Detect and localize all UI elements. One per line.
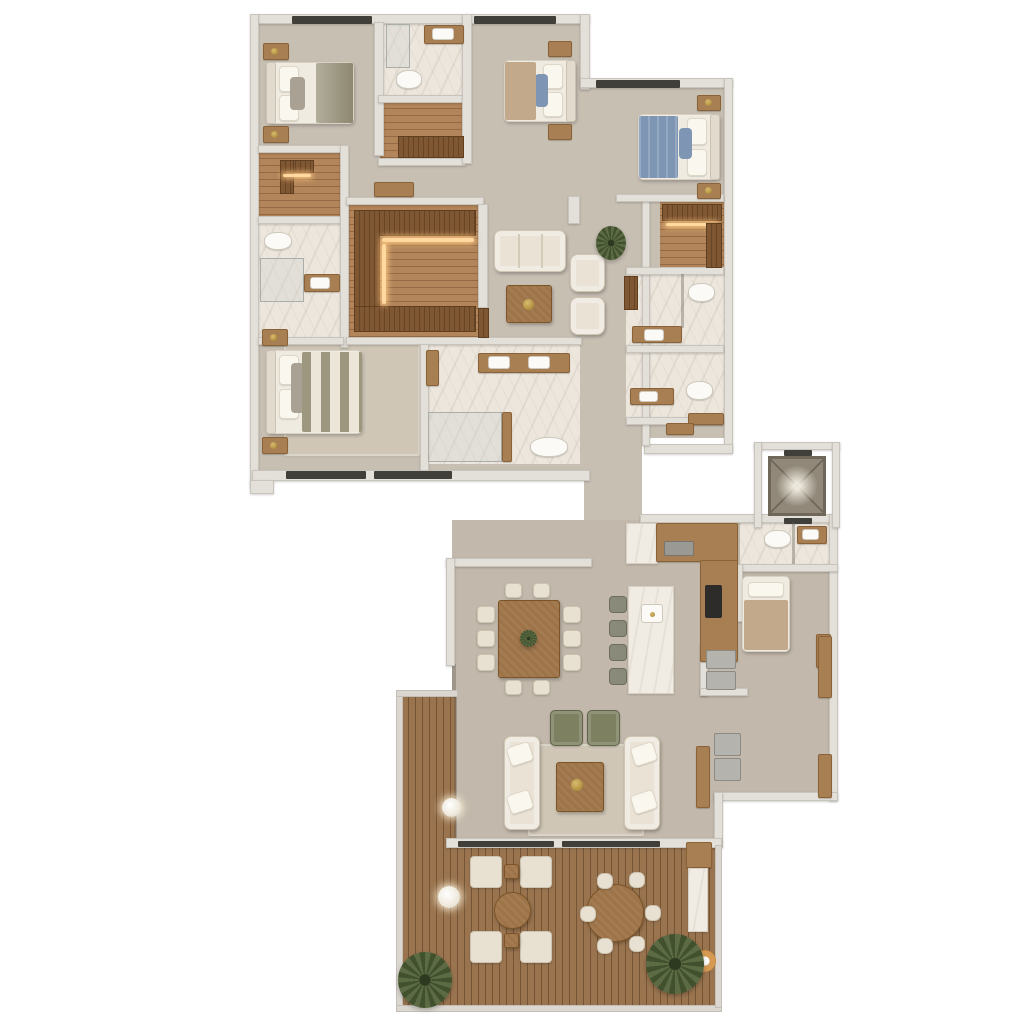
wall-elevator-top [754, 442, 840, 450]
sofa-sitting-area [494, 230, 566, 272]
knob-nightstand-master-1 [270, 334, 277, 341]
lounge-chair-1 [470, 856, 502, 888]
kitchen-counter-marble-end [626, 523, 658, 564]
cushion-bedroom-wing [679, 128, 692, 159]
knob-nightstand-tl-2 [271, 131, 278, 138]
knob-nightstand-wing-2 [705, 187, 712, 194]
wall-wing-right [724, 78, 733, 452]
wall-closet-tc-bottom [378, 158, 466, 166]
partition-master-bath [502, 412, 512, 462]
lounge-chair-4 [520, 931, 552, 963]
wall-walkin-bottom [346, 337, 582, 345]
elevator-cab [768, 456, 826, 516]
cushion-bedroom-tc [535, 74, 548, 107]
wall-closet-tl-top [258, 145, 344, 153]
pillow-bedroom-small [748, 582, 784, 597]
floor-lamp-terrace [438, 886, 460, 908]
kitchen-island [628, 586, 674, 694]
led-walkin-top [382, 238, 474, 242]
island-faucet [650, 612, 655, 617]
window-bedroom-tc [474, 16, 556, 24]
sink-bathroom-tl [310, 277, 330, 289]
blanket-master-bedroom [302, 352, 362, 432]
kitchen-stove [705, 585, 722, 618]
sink-bathroom-wing-2 [639, 391, 658, 402]
led-walkin-left [382, 244, 386, 304]
dining-chair-right-2 [563, 630, 581, 647]
wall-bath-lower-bottom [736, 564, 838, 572]
floor-deck-side-strip [402, 697, 456, 845]
blanket-bedroom-tc [505, 62, 536, 120]
console-living-right [696, 746, 710, 808]
wall-column-tl-right [340, 145, 349, 348]
wall-lower-top-left [446, 558, 592, 567]
shower-bathroom-tc [386, 24, 410, 68]
dining-chair-right-1 [563, 606, 581, 623]
terrace-chair-1 [645, 905, 661, 921]
side-table-terrace-1 [504, 864, 519, 879]
plant-corridor [596, 226, 626, 260]
wall-elevator-left [754, 442, 762, 528]
console-wing-b [666, 423, 694, 435]
palm-terrace-right [646, 934, 704, 994]
elevator-door-top [784, 450, 812, 456]
shower-master-bath [428, 412, 502, 462]
bar-cabinet-terrace [686, 842, 712, 868]
bar-stool-2 [609, 620, 627, 637]
knob-nightstand-tl-1 [271, 48, 278, 55]
toilet-bathroom-tc [396, 70, 422, 89]
bar-stool-3 [609, 644, 627, 661]
wall-walkin-top [346, 197, 484, 205]
wall-upper-step [250, 480, 274, 494]
appliance-kitchen-1 [706, 650, 736, 669]
sofa-seam-1 [518, 234, 520, 268]
terrace-chair-2 [629, 936, 645, 952]
dining-chair-left-1 [477, 606, 495, 623]
console-walkin-side [478, 308, 489, 338]
side-table-terrace-2 [504, 933, 519, 948]
wall-upper-left [250, 14, 259, 488]
wall-bathroom-tc-bottom [378, 95, 466, 103]
headboard-bedroom-tl [266, 62, 276, 124]
terrace-border-right [715, 845, 722, 1008]
window-bedroom-tl [292, 16, 372, 24]
bar-stool-1 [609, 596, 627, 613]
bar-counter-terrace [688, 868, 708, 932]
toilet-bathroom-wing-1 [688, 283, 715, 302]
glass-bathroom-wing-1 [681, 274, 684, 328]
headboard-bedroom-wing [710, 114, 720, 180]
dining-chair-bottom-2 [533, 680, 550, 695]
console-master-bedroom [426, 350, 439, 386]
lounge-chair-3 [470, 931, 502, 963]
bar-stool-4 [609, 668, 627, 685]
armchair-sitting-2 [570, 297, 605, 335]
toilet-bathroom-wing-2 [686, 381, 713, 400]
console-wall-right-2 [818, 754, 832, 798]
wardrobe-walkin-bottom [354, 306, 476, 332]
dining-chair-top-1 [505, 583, 522, 598]
deck-edge-line [454, 697, 457, 845]
wall-bedroom-tl-right [374, 22, 384, 156]
dining-chair-left-2 [477, 630, 495, 647]
sink-master-1 [488, 356, 510, 369]
armchair-green-1 [550, 710, 583, 746]
shower-bathroom-tl [260, 258, 304, 302]
appliance-utility-1 [714, 733, 741, 756]
cushion-bedroom-tl [290, 77, 305, 110]
sofa-seam-2 [541, 234, 543, 268]
terrace-chair-4 [580, 906, 596, 922]
floor-plan-canvas [0, 0, 1024, 1024]
nightstand-bedroom-tc-2 [548, 124, 572, 140]
led-closet-tl [283, 174, 311, 177]
plant-coffee-table-sitting [523, 299, 534, 310]
headboard-bedroom-tc [566, 60, 576, 122]
wardrobe-closet-tl-b [280, 160, 294, 194]
knob-nightstand-master-2 [270, 442, 277, 449]
toilet-bathroom-tl [264, 232, 292, 250]
sink-bathroom-tc [432, 28, 454, 40]
dining-chair-top-2 [533, 583, 550, 598]
headboard-master-bedroom [266, 350, 276, 434]
sink-bathroom-wing-1 [644, 329, 664, 341]
wall-closet-tl-bottom [258, 216, 344, 224]
console-hallway-upper [374, 182, 414, 197]
terrace-chair-3 [597, 938, 613, 954]
plant-dining-table [520, 630, 537, 647]
console-wall-right-1 [818, 636, 832, 698]
plant-coffee-table-living [571, 779, 583, 791]
floor-lamp-living [442, 798, 461, 817]
wall-walkin-right [478, 204, 488, 308]
wall-wing-bottom [644, 444, 733, 454]
glass-bathroom-lower [792, 522, 795, 564]
sink-master-2 [528, 356, 550, 369]
wall-lower-left [446, 558, 455, 666]
round-coffee-table-terrace [494, 892, 531, 929]
terrace-chair-5 [597, 873, 613, 889]
armchair-sitting-1 [570, 254, 605, 292]
blanket-bedroom-wing [639, 116, 678, 178]
terrace-chair-6 [629, 872, 645, 888]
armchair-green-2 [587, 710, 620, 746]
terrace-border-bottom [396, 1005, 722, 1012]
sliding-door-terrace-1 [458, 841, 554, 847]
window-bedroom-bl-1 [286, 471, 366, 479]
wall-wing-bath-divider [626, 345, 724, 353]
kitchen-sink-unit [664, 541, 694, 556]
wall-corridor-right [642, 196, 650, 446]
elevator-door-bottom [784, 518, 812, 524]
nightstand-bedroom-tc-1 [548, 41, 572, 57]
blanket-bedroom-small [744, 600, 788, 650]
appliance-utility-2 [714, 758, 741, 781]
sink-bathroom-lower [802, 529, 819, 540]
blanket-bedroom-tl [316, 63, 353, 123]
terrace-border-cap [396, 690, 458, 697]
wardrobe-closet-wing [662, 204, 722, 221]
lounge-chair-2 [520, 856, 552, 888]
dining-chair-right-3 [563, 654, 581, 671]
sliding-door-terrace-2 [562, 841, 660, 847]
toilet-master-bath [530, 437, 568, 457]
toilet-bathroom-lower [764, 530, 791, 548]
appliance-kitchen-2 [706, 671, 736, 690]
knob-nightstand-wing-1 [705, 99, 712, 106]
wardrobe-closet-wing-side [706, 223, 722, 268]
dining-chair-left-3 [477, 654, 495, 671]
window-bedroom-bl-2 [374, 471, 452, 479]
palm-terrace-left [398, 952, 452, 1008]
window-bedroom-wing [596, 80, 680, 88]
wall-wing-bath1-top [626, 267, 724, 275]
wardrobe-closet-tc [398, 136, 464, 158]
dining-chair-bottom-1 [505, 680, 522, 695]
cabinet-corridor [624, 276, 638, 310]
wall-elevator-right [832, 442, 840, 528]
wall-sitting-stub [568, 196, 580, 224]
